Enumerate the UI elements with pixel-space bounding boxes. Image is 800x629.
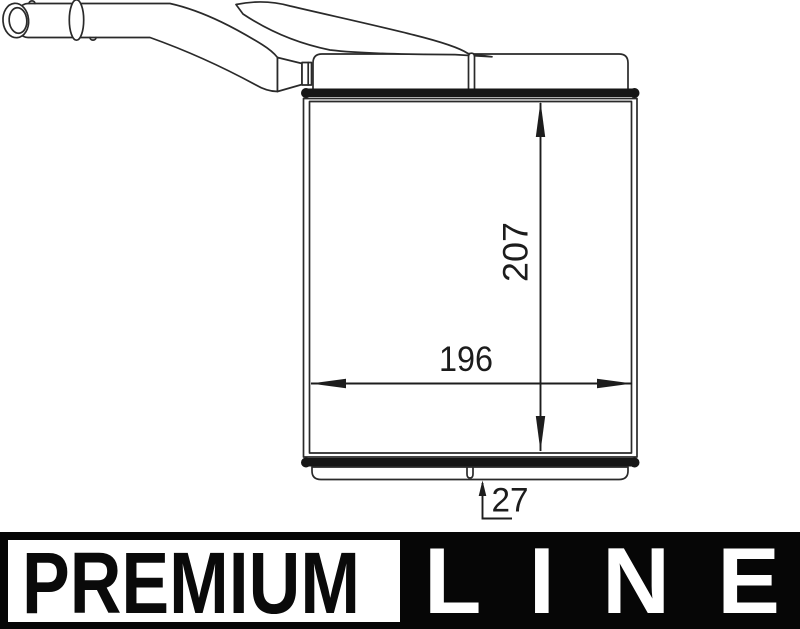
inlet-fitting-cylinder [302,63,312,86]
dim-width-arrow-left [311,379,347,388]
core-top-bar [306,89,635,98]
core-body-outer [304,99,638,458]
dim-height-arrow-up [536,102,545,138]
line-label: LINE [424,528,780,629]
inlet-cone-fitting [278,58,303,92]
dim-height-arrow-down [536,416,545,452]
core-bottom-bar [306,458,635,467]
premium-line-banner: PREMIUM LINE [0,528,800,629]
heater-core-drawing: 207 196 27 PREMIUM LINE [0,0,800,629]
dim-depth-label: 27 [492,482,529,520]
dim-width-arrow-right [597,379,633,388]
top-tank-divider [469,53,475,89]
top-bar-left-knob [301,88,311,98]
top-bar-right-knob [630,88,640,98]
inlet-pipe [16,4,278,92]
product-image: 207 196 27 PREMIUM LINE [0,0,800,629]
bottom-bar-left-knob [301,458,311,468]
core-assembly [2,0,640,480]
pipe-collar [69,0,83,40]
premium-label: PREMIUM [22,535,360,629]
dim-width-label: 196 [439,340,493,379]
dim-height-label: 207 [497,222,536,282]
bottom-bar-right-knob [630,458,640,468]
core-body-inner [310,102,632,454]
outlet-pipe [236,2,492,57]
